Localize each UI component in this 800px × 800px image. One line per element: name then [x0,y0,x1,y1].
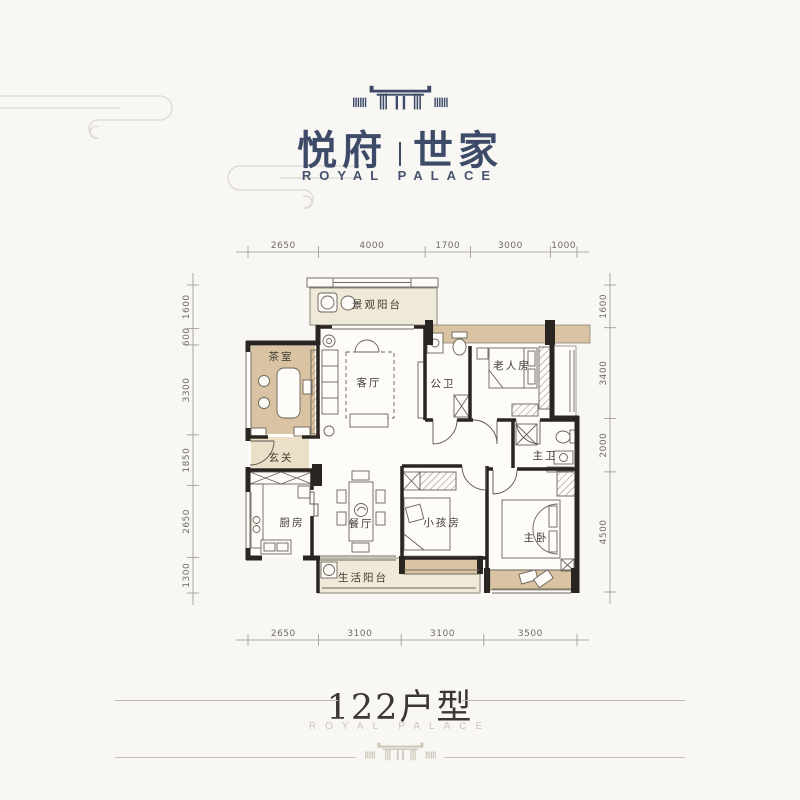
footer-rule-left [115,700,338,701]
dim-label-left: 1600 [182,294,192,319]
dim-label-right: 2000 [599,433,609,458]
dim-label-left: 1850 [182,448,192,473]
brand-title-left: 悦府 [297,127,387,174]
dimension-group-top: 26504000170030001000 [236,241,589,258]
dim-label-left: 1300 [182,563,192,588]
dim-label-bottom: 3500 [518,629,543,639]
dimension-group-right: 1600340020004500 [599,273,616,604]
room-label-kids-room: 小孩房 [423,516,461,529]
footer-subtitle: ROYAL PALACE [0,721,800,732]
dim-label-top: 3000 [498,241,523,251]
dim-label-bottom: 2650 [271,629,296,639]
room-label-tea-room: 茶室 [269,350,294,363]
dim-label-left: 2650 [182,509,192,534]
room-label-kitchen: 厨房 [280,516,305,529]
dim-label-right: 1600 [599,294,609,319]
room-label-dining-room: 餐厅 [349,517,374,530]
dim-label-top: 4000 [359,241,384,251]
poster-canvas: 2650400017003000100026503100310035001600… [0,0,800,800]
brand-gate-icon [353,86,448,110]
dim-label-top: 1700 [435,241,460,251]
dim-label-left: 3300 [182,377,192,402]
brand-title-right: 世家 [413,127,503,174]
dim-label-bottom: 3100 [430,629,455,639]
dim-label-right: 3400 [599,361,609,386]
room-label-service-balcony: 生活阳台 [338,571,388,584]
dim-label-top: 1000 [551,241,576,251]
dimension-group-bottom: 2650310031003500 [236,629,589,646]
elder-bay-window [554,346,576,416]
room-label-view-balcony: 景观阳台 [352,298,402,311]
dim-label-right: 4500 [599,519,609,544]
brand-divider [399,142,401,166]
dim-label-bottom: 3100 [347,629,372,639]
dim-label-left: 600 [182,327,192,346]
footer-gate-icon [365,743,436,761]
footer-rule-right [462,700,685,701]
room-label-foyer: 玄关 [269,451,294,464]
room-label-elder-room: 老人房 [493,359,531,372]
brand-subtitle: ROYAL PALACE [0,168,800,183]
room-label-public-bath: 公卫 [431,378,456,390]
room-label-master-bath: 主卫 [533,450,558,462]
footer-rule2-right [444,757,685,758]
dimension-group-left: 16006003300185026501300 [182,273,199,605]
room-label-living-room: 客厅 [357,376,382,389]
footer-rule2-left [115,757,356,758]
room-label-master-bedroom: 主卧 [524,531,549,544]
dim-label-top: 2650 [271,241,296,251]
